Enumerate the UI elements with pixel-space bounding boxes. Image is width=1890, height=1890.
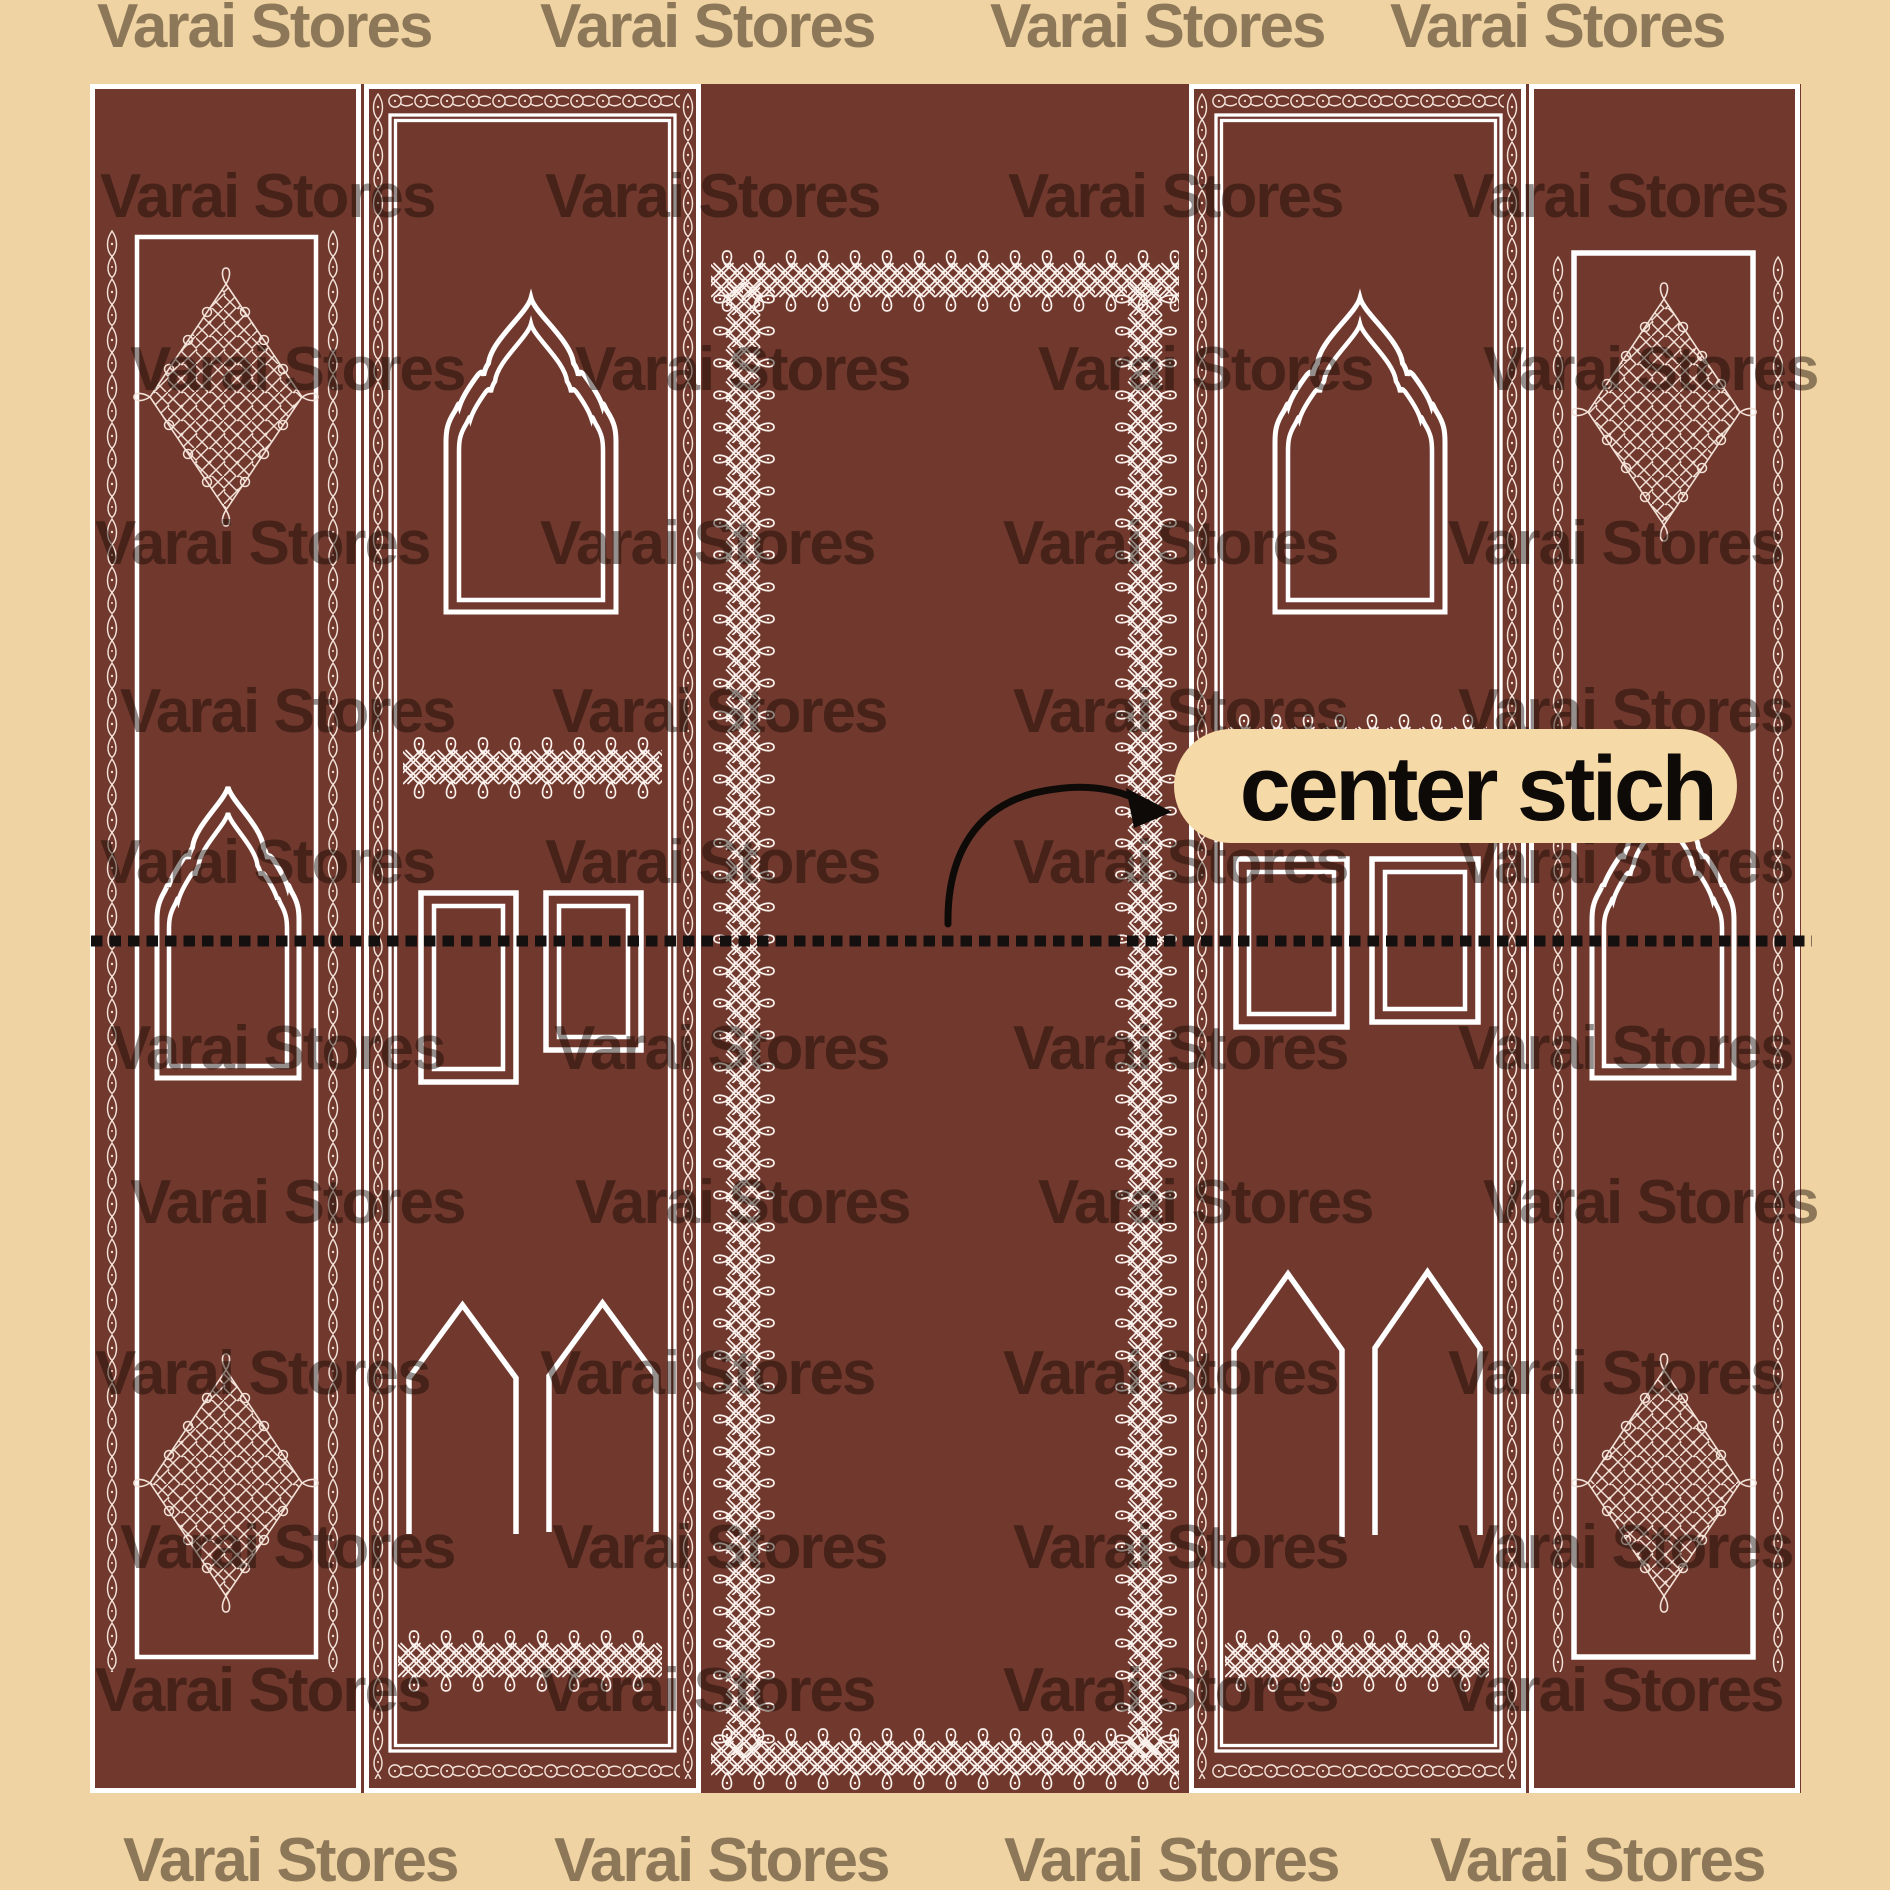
svg-text:Varai Stores: Varai Stores (540, 1339, 874, 1408)
svg-text:Varai Stores: Varai Stores (100, 162, 434, 231)
svg-text:Varai Stores: Varai Stores (120, 677, 454, 746)
svg-text:Varai Stores: Varai Stores (1038, 335, 1372, 404)
svg-text:Varai Stores: Varai Stores (552, 677, 886, 746)
svg-text:Varai Stores: Varai Stores (1003, 1656, 1337, 1725)
svg-text:Varai Stores: Varai Stores (97, 0, 431, 61)
svg-text:Varai Stores: Varai Stores (554, 1014, 888, 1083)
svg-text:Varai Stores: Varai Stores (1458, 1513, 1792, 1582)
svg-text:Varai Stores: Varai Stores (1453, 162, 1787, 231)
svg-text:Varai Stores: Varai Stores (1483, 335, 1817, 404)
svg-text:Varai Stores: Varai Stores (130, 1168, 464, 1237)
svg-text:Varai Stores: Varai Stores (1448, 1339, 1782, 1408)
svg-text:center stich: center stich (1240, 738, 1714, 840)
svg-text:Varai Stores: Varai Stores (1013, 1513, 1347, 1582)
svg-text:Varai Stores: Varai Stores (1458, 1014, 1792, 1083)
svg-text:Varai Stores: Varai Stores (1430, 1826, 1764, 1890)
svg-text:Varai Stores: Varai Stores (552, 1513, 886, 1582)
svg-text:Varai Stores: Varai Stores (540, 1656, 874, 1725)
svg-text:Varai Stores: Varai Stores (545, 828, 879, 897)
svg-text:Varai Stores: Varai Stores (95, 1656, 429, 1725)
svg-text:Varai Stores: Varai Stores (1003, 1339, 1337, 1408)
svg-text:Varai Stores: Varai Stores (1004, 1826, 1338, 1890)
svg-text:Varai Stores: Varai Stores (1038, 1168, 1372, 1237)
svg-text:Varai Stores: Varai Stores (95, 509, 429, 578)
svg-text:Varai Stores: Varai Stores (100, 828, 434, 897)
svg-text:Varai Stores: Varai Stores (123, 1826, 457, 1890)
svg-text:Varai Stores: Varai Stores (1008, 162, 1342, 231)
svg-text:Varai Stores: Varai Stores (1448, 1656, 1782, 1725)
svg-text:Varai Stores: Varai Stores (1448, 509, 1782, 578)
svg-text:Varai Stores: Varai Stores (540, 0, 874, 61)
svg-text:Varai Stores: Varai Stores (554, 1826, 888, 1890)
svg-text:Varai Stores: Varai Stores (130, 335, 464, 404)
svg-text:Varai Stores: Varai Stores (990, 0, 1324, 61)
svg-text:Varai Stores: Varai Stores (120, 1513, 454, 1582)
svg-text:Varai Stores: Varai Stores (1003, 509, 1337, 578)
svg-text:Varai Stores: Varai Stores (1013, 1014, 1347, 1083)
svg-text:Varai Stores: Varai Stores (575, 1168, 909, 1237)
svg-text:Varai Stores: Varai Stores (545, 162, 879, 231)
svg-text:Varai Stores: Varai Stores (1483, 1168, 1817, 1237)
svg-text:Varai Stores: Varai Stores (95, 1339, 429, 1408)
svg-text:Varai Stores: Varai Stores (540, 509, 874, 578)
svg-text:Varai Stores: Varai Stores (1390, 0, 1724, 61)
svg-text:Varai Stores: Varai Stores (575, 335, 909, 404)
svg-text:Varai Stores: Varai Stores (110, 1014, 444, 1083)
